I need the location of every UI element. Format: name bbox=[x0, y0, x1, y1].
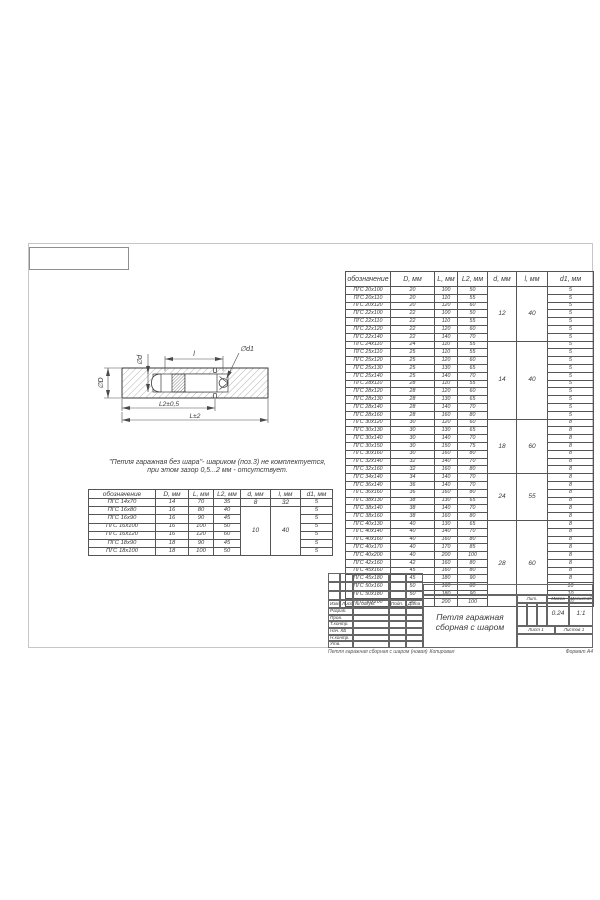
table-cell: 65 bbox=[458, 364, 488, 372]
table-cell: 24 bbox=[488, 474, 517, 521]
table-cell: ПГС 32x160 bbox=[346, 466, 391, 474]
date-cell bbox=[406, 635, 423, 642]
footer-format-label: Формат А4 bbox=[566, 649, 593, 655]
table-cell: 5 bbox=[548, 302, 594, 310]
table-row: ПГС 32x16032160808 bbox=[346, 466, 594, 474]
table-cell: 80 bbox=[458, 450, 488, 458]
table-cell: 130 bbox=[435, 364, 458, 372]
footer-doc-name: Петля гаражная сборная с шаром (новая) bbox=[328, 649, 428, 655]
small-size-table: обозначениеD, ммL, ммL2, ммd, ммl, ммd1,… bbox=[88, 489, 333, 556]
table-cell: ПГС 25x120 bbox=[346, 357, 391, 365]
table-cell: 5 bbox=[548, 310, 594, 318]
table-cell: ПГС 40x200 bbox=[346, 552, 391, 560]
table-cell: 50 bbox=[458, 310, 488, 318]
table-cell: 120 bbox=[435, 325, 458, 333]
table-cell: 140 bbox=[435, 372, 458, 380]
title-block: Петля гаражная сборная с шаром Лит. Масс… bbox=[328, 573, 593, 648]
table-row: ПГС 22x12022120605 bbox=[346, 325, 594, 333]
table-cell: 120 bbox=[435, 388, 458, 396]
table-cell: 65 bbox=[458, 427, 488, 435]
table-cell: ПГС 22x100 bbox=[346, 310, 391, 318]
table-row: ПГС 28x14028140705 bbox=[346, 403, 594, 411]
table-cell: 160 bbox=[435, 450, 458, 458]
date-cell bbox=[406, 641, 423, 648]
table-cell: 18 bbox=[488, 419, 517, 474]
table-cell: 35 bbox=[214, 499, 241, 507]
table-cell: 14 bbox=[156, 499, 189, 507]
dim-D bbox=[104, 368, 121, 398]
table-cell: 30 bbox=[391, 435, 435, 443]
table-cell: 40 bbox=[271, 507, 301, 556]
dim-label-d1: ∅d1 bbox=[240, 346, 254, 353]
table-cell: 8 bbox=[548, 489, 594, 497]
table-cell: 8 bbox=[548, 481, 594, 489]
table-row: ПГС 28x16028160805 bbox=[346, 411, 594, 419]
main-size-table-grid: обозначениеD, ммL, ммL2, ммd, ммl, ммd1,… bbox=[345, 271, 594, 607]
table-cell: 110 bbox=[435, 349, 458, 357]
column-header: L2, мм bbox=[458, 272, 488, 287]
table-cell: 5 bbox=[301, 531, 333, 539]
docnum-cell bbox=[353, 628, 389, 635]
table-cell: 100 bbox=[435, 287, 458, 295]
table-cell: 5 bbox=[548, 364, 594, 372]
table-cell: 55 bbox=[458, 349, 488, 357]
table-cell: 60 bbox=[458, 325, 488, 333]
document-title-line1: Петля гаражная bbox=[436, 612, 504, 622]
table-cell: 40 bbox=[391, 544, 435, 552]
table-cell: 20 bbox=[391, 302, 435, 310]
table-cell: ПГС 30x140 bbox=[346, 435, 391, 443]
table-row: ПГС 38x14038140708 bbox=[346, 505, 594, 513]
table-row: ПГС 25x12025120605 bbox=[346, 357, 594, 365]
lit-header: Лит. bbox=[517, 595, 547, 603]
table-cell: 120 bbox=[189, 531, 214, 539]
table-cell: 50 bbox=[458, 287, 488, 295]
table-cell: 32 bbox=[271, 499, 301, 507]
table-cell: ПГС 28x120 bbox=[346, 388, 391, 396]
table-cell: 36 bbox=[391, 489, 435, 497]
column-header: d, мм bbox=[241, 490, 271, 499]
table-cell: ПГС 32x140 bbox=[346, 458, 391, 466]
table-cell: 80 bbox=[458, 536, 488, 544]
revision-empty-cell bbox=[353, 573, 389, 582]
table-cell: 8 bbox=[548, 497, 594, 505]
table-row: ПГС 14x701470358325 bbox=[89, 499, 333, 507]
table-cell: 5 bbox=[548, 372, 594, 380]
table-row: ПГС 40x17040170858 bbox=[346, 544, 594, 552]
table-cell: 40 bbox=[517, 287, 548, 342]
table-cell: ПГС 25x130 bbox=[346, 364, 391, 372]
table-row: ПГС 24x110241105514405 bbox=[346, 341, 594, 349]
table-cell: 18 bbox=[156, 539, 189, 547]
table-row: ПГС 30x13030130658 bbox=[346, 427, 594, 435]
table-cell: 25 bbox=[391, 349, 435, 357]
role-label: Пров. bbox=[328, 615, 353, 622]
table-row: ПГС 20x12020120605 bbox=[346, 302, 594, 310]
table-row: ПГС 38x16038160808 bbox=[346, 513, 594, 521]
docnum-cell bbox=[353, 635, 389, 642]
table-cell: 8 bbox=[548, 442, 594, 450]
table-row: ПГС 25x14025140705 bbox=[346, 372, 594, 380]
table-cell: 80 bbox=[458, 411, 488, 419]
mass-header: Масса bbox=[547, 595, 569, 603]
table-cell: 16 bbox=[156, 507, 189, 515]
table-cell: 8 bbox=[548, 520, 594, 528]
table-cell: ПГС 30x120 bbox=[346, 419, 391, 427]
table-cell: 45 bbox=[214, 539, 241, 547]
table-cell: 28 bbox=[391, 388, 435, 396]
role-label: Утв. bbox=[328, 641, 353, 648]
table-cell: ПГС 14x70 bbox=[89, 499, 156, 507]
table-cell: 16 bbox=[156, 515, 189, 523]
table-cell: 28 bbox=[391, 396, 435, 404]
table-cell: 12 bbox=[488, 287, 517, 342]
table-cell: 18 bbox=[156, 548, 189, 556]
table-cell: ПГС 28x130 bbox=[346, 396, 391, 404]
table-row: ПГС 28x11028110555 bbox=[346, 380, 594, 388]
table-cell: ПГС 42x160 bbox=[346, 559, 391, 567]
revision-empty-cell bbox=[389, 591, 406, 600]
table-cell: ПГС 40x140 bbox=[346, 528, 391, 536]
table-cell: 70 bbox=[458, 528, 488, 536]
sheets-total: Листов 1 bbox=[555, 626, 593, 634]
table-cell: 8 bbox=[548, 474, 594, 482]
table-cell: 110 bbox=[435, 380, 458, 388]
table-cell: 80 bbox=[189, 507, 214, 515]
table-cell: ПГС 34x140 bbox=[346, 474, 391, 482]
table-cell: 8 bbox=[548, 544, 594, 552]
table-row: ПГС 42x16042160808 bbox=[346, 559, 594, 567]
table-cell: ПГС 36x140 bbox=[346, 481, 391, 489]
table-cell: 100 bbox=[189, 523, 214, 531]
table-cell: 8 bbox=[548, 466, 594, 474]
hinge-section-drawing: ∅D ∅d l ∅d1 L2±0,5 L±2 bbox=[83, 330, 295, 438]
dim-label-L: L±2 bbox=[190, 413, 201, 420]
revision-empty-cell bbox=[328, 573, 340, 582]
table-cell: 40 bbox=[517, 341, 548, 419]
table-cell: 8 bbox=[548, 559, 594, 567]
dim-label-D: ∅D bbox=[98, 377, 105, 388]
table-cell: ПГС 40x160 bbox=[346, 536, 391, 544]
table-cell: 38 bbox=[391, 497, 435, 505]
table-cell: 25 bbox=[391, 372, 435, 380]
table-row: ПГС 32x14032140708 bbox=[346, 458, 594, 466]
table-cell: ПГС 25x140 bbox=[346, 372, 391, 380]
dim-label-d: ∅d bbox=[137, 354, 144, 365]
table-cell: 60 bbox=[458, 302, 488, 310]
table-cell: 160 bbox=[435, 536, 458, 544]
revision-header: Дата bbox=[406, 600, 423, 608]
column-header: L, мм bbox=[189, 490, 214, 499]
table-cell: 25 bbox=[391, 357, 435, 365]
revision-empty-cell bbox=[353, 582, 389, 591]
table-cell: 5 bbox=[548, 349, 594, 357]
table-cell: 36 bbox=[391, 481, 435, 489]
header-row: обозначениеD, ммL, ммL2, ммd, ммl, ммd1,… bbox=[89, 490, 333, 499]
table-row: ПГС 22x10022100505 bbox=[346, 310, 594, 318]
small-size-table-grid: обозначениеD, ммL, ммL2, ммd, ммl, ммd1,… bbox=[88, 489, 333, 556]
table-cell: 34 bbox=[391, 474, 435, 482]
table-cell: 45 bbox=[214, 515, 241, 523]
revision-header: Изм. bbox=[328, 600, 340, 608]
table-cell: 40 bbox=[391, 520, 435, 528]
table-cell: 70 bbox=[458, 435, 488, 443]
table-cell: 5 bbox=[301, 507, 333, 515]
role-label: Нач. КБ bbox=[328, 628, 353, 635]
table-cell: 14 bbox=[488, 341, 517, 419]
table-row: ПГС 20x11020110555 bbox=[346, 294, 594, 302]
table-cell: ПГС 28x110 bbox=[346, 380, 391, 388]
table-cell: 160 bbox=[435, 466, 458, 474]
table-cell: 8 bbox=[548, 450, 594, 458]
table-cell: 70 bbox=[458, 403, 488, 411]
table-cell: ПГС 20x110 bbox=[346, 294, 391, 302]
footer-copied-label: Копировал bbox=[430, 649, 455, 655]
table-cell: 20 bbox=[391, 287, 435, 295]
table-cell: 8 bbox=[548, 427, 594, 435]
table-cell: 130 bbox=[435, 520, 458, 528]
table-cell: ПГС 18x100 bbox=[89, 548, 156, 556]
table-row: ПГС 30x120301206018608 bbox=[346, 419, 594, 427]
mass-value: 0.24 bbox=[547, 603, 569, 626]
table-cell: 5 bbox=[548, 287, 594, 295]
table-cell: 120 bbox=[435, 419, 458, 427]
table-cell: 70 bbox=[458, 372, 488, 380]
table-cell: 32 bbox=[391, 466, 435, 474]
table-cell: 140 bbox=[435, 458, 458, 466]
lit-sub-cell bbox=[527, 603, 537, 626]
table-cell: ПГС 20x100 bbox=[346, 287, 391, 295]
footer-strip: Петля гаражная сборная с шаром (новая) К… bbox=[328, 649, 593, 655]
table-cell: 22 bbox=[391, 333, 435, 341]
table-cell: ПГС 38x130 bbox=[346, 497, 391, 505]
dim-label-l: l bbox=[193, 351, 195, 358]
revision-empty-cell bbox=[328, 582, 340, 591]
role-label: Разраб. bbox=[328, 608, 353, 615]
column-header: d1, мм bbox=[548, 272, 594, 287]
table-cell: 170 bbox=[435, 544, 458, 552]
note-text: "Петля гаражная без шара"- шариком (поз.… bbox=[90, 459, 345, 475]
table-cell: 50 bbox=[214, 523, 241, 531]
role-label: Н.контр. bbox=[328, 635, 353, 642]
table-cell: 5 bbox=[301, 548, 333, 556]
revision-empty-cell bbox=[406, 573, 423, 582]
table-cell: 55 bbox=[458, 341, 488, 349]
table-cell: 8 bbox=[548, 435, 594, 443]
table-cell: ПГС 16x80 bbox=[89, 507, 156, 515]
table-cell: 32 bbox=[391, 458, 435, 466]
table-row: ПГС 28x12028120605 bbox=[346, 388, 594, 396]
docnum-cell bbox=[353, 615, 389, 622]
table-cell: 8 bbox=[548, 513, 594, 521]
column-header: обозначение bbox=[346, 272, 391, 287]
pin-hatched-segment bbox=[172, 374, 185, 392]
table-cell: 40 bbox=[391, 552, 435, 560]
column-header: обозначение bbox=[89, 490, 156, 499]
revision-empty-cell bbox=[389, 573, 406, 582]
table-cell: 100 bbox=[435, 310, 458, 318]
table-cell: 70 bbox=[458, 458, 488, 466]
table-cell: 60 bbox=[458, 357, 488, 365]
table-cell: 30 bbox=[391, 419, 435, 427]
table-row: ПГС 40x14040140708 bbox=[346, 528, 594, 536]
table-cell: 110 bbox=[435, 318, 458, 326]
table-cell: 130 bbox=[435, 497, 458, 505]
date-cell bbox=[406, 628, 423, 635]
table-row: ПГС 38x13038130658 bbox=[346, 497, 594, 505]
table-cell: ПГС 40x170 bbox=[346, 544, 391, 552]
table-cell: 70 bbox=[458, 474, 488, 482]
note-line-1: "Петля гаражная без шара"- шариком (поз.… bbox=[90, 459, 345, 467]
revision-header: Подп. bbox=[389, 600, 406, 608]
pin-ball-end bbox=[152, 374, 162, 392]
revision-empty-cell bbox=[328, 591, 340, 600]
table-cell: 8 bbox=[241, 499, 271, 507]
table-row: ПГС 36x14036140708 bbox=[346, 481, 594, 489]
table-cell: 100 bbox=[458, 552, 488, 560]
table-cell: 90 bbox=[189, 515, 214, 523]
column-header: D, мм bbox=[156, 490, 189, 499]
sign-cell bbox=[389, 608, 406, 615]
table-cell: 5 bbox=[548, 411, 594, 419]
table-cell: 5 bbox=[548, 333, 594, 341]
table-cell: 140 bbox=[435, 528, 458, 536]
table-cell: 38 bbox=[391, 505, 435, 513]
table-cell: ПГС 38x160 bbox=[346, 513, 391, 521]
table-cell: ПГС 22x140 bbox=[346, 333, 391, 341]
table-cell: 110 bbox=[435, 341, 458, 349]
table-cell: ПГС 36x160 bbox=[346, 489, 391, 497]
table-cell: 28 bbox=[391, 411, 435, 419]
revision-header: Лист bbox=[340, 600, 353, 608]
table-cell: 22 bbox=[391, 325, 435, 333]
corner-designation-box bbox=[29, 247, 129, 270]
revision-empty-cell bbox=[406, 591, 423, 600]
table-cell: 150 bbox=[435, 442, 458, 450]
table-cell: ПГС 28x160 bbox=[346, 411, 391, 419]
table-cell: 110 bbox=[435, 294, 458, 302]
table-cell: ПГС 40x130 bbox=[346, 520, 391, 528]
table-cell: ПГС 22x120 bbox=[346, 325, 391, 333]
table-cell: 160 bbox=[435, 513, 458, 521]
sign-cell bbox=[389, 641, 406, 648]
table-cell: 5 bbox=[301, 539, 333, 547]
table-cell: 5 bbox=[301, 499, 333, 507]
table-cell: 65 bbox=[458, 520, 488, 528]
table-cell: 140 bbox=[435, 333, 458, 341]
table-cell: 160 bbox=[435, 489, 458, 497]
table-cell: 60 bbox=[458, 419, 488, 427]
sign-cell bbox=[389, 615, 406, 622]
docnum-cell bbox=[353, 641, 389, 648]
table-cell: ПГС 16x120 bbox=[89, 531, 156, 539]
table-cell: 55 bbox=[458, 294, 488, 302]
table-row: ПГС 34x140341407024558 bbox=[346, 474, 594, 482]
table-cell: 90 bbox=[189, 539, 214, 547]
table-cell: 130 bbox=[435, 396, 458, 404]
table-cell: ПГС 38x140 bbox=[346, 505, 391, 513]
table-cell: 28 bbox=[391, 380, 435, 388]
table-cell: 16 bbox=[156, 531, 189, 539]
designation-cell bbox=[423, 584, 593, 595]
table-cell: 10 bbox=[241, 507, 271, 556]
lit-sub-cell bbox=[517, 603, 527, 626]
table-cell: ПГС 22x110 bbox=[346, 318, 391, 326]
table-row: ПГС 25x11025110555 bbox=[346, 349, 594, 357]
revision-header: № докум. bbox=[353, 600, 389, 608]
table-cell: 16 bbox=[156, 523, 189, 531]
table-cell: 8 bbox=[548, 536, 594, 544]
dim-label-L2: L2±0,5 bbox=[159, 401, 179, 408]
column-header: L, мм bbox=[435, 272, 458, 287]
table-cell: 140 bbox=[435, 474, 458, 482]
table-cell: ПГС 20x120 bbox=[346, 302, 391, 310]
table-cell: 30 bbox=[391, 450, 435, 458]
table-cell: 42 bbox=[391, 559, 435, 567]
table-cell: 140 bbox=[435, 435, 458, 443]
table-cell: 5 bbox=[548, 380, 594, 388]
table-row: ПГС 22x14022140705 bbox=[346, 333, 594, 341]
column-header: d1, мм bbox=[301, 490, 333, 499]
table-row: ПГС 16x8016804010405 bbox=[89, 507, 333, 515]
table-cell: 75 bbox=[458, 442, 488, 450]
table-cell: 40 bbox=[391, 528, 435, 536]
table-row: ПГС 22x11022110555 bbox=[346, 318, 594, 326]
column-header: D, мм bbox=[391, 272, 435, 287]
main-size-table: обозначениеD, ммL, ммL2, ммd, ммl, ммd1,… bbox=[345, 271, 594, 607]
revision-empty-cell bbox=[340, 591, 353, 600]
organization-cell bbox=[517, 634, 593, 648]
scale-value: 1:1 bbox=[569, 603, 593, 626]
table-cell: 70 bbox=[458, 333, 488, 341]
table-cell: 85 bbox=[458, 544, 488, 552]
table-cell: ПГС 16x90 bbox=[89, 515, 156, 523]
table-cell: 65 bbox=[458, 396, 488, 404]
table-cell: 200 bbox=[435, 552, 458, 560]
table-cell: ПГС 24x110 bbox=[346, 341, 391, 349]
table-cell: 80 bbox=[458, 489, 488, 497]
table-row: ПГС 36x16036160808 bbox=[346, 489, 594, 497]
table-cell: ПГС 30x130 bbox=[346, 427, 391, 435]
table-cell: 8 bbox=[548, 528, 594, 536]
table-cell: 100 bbox=[189, 548, 214, 556]
table-cell: 55 bbox=[517, 474, 548, 521]
revision-empty-cell bbox=[389, 582, 406, 591]
table-cell: 70 bbox=[458, 505, 488, 513]
table-cell: 60 bbox=[517, 419, 548, 474]
revision-empty-cell bbox=[353, 591, 389, 600]
table-cell: 20 bbox=[391, 294, 435, 302]
table-cell: 65 bbox=[458, 497, 488, 505]
table-row: ПГС 40x200402001008 bbox=[346, 552, 594, 560]
table-cell: 60 bbox=[214, 531, 241, 539]
sign-cell bbox=[389, 628, 406, 635]
scale-header: Масштаб bbox=[569, 595, 593, 603]
table-cell: 70 bbox=[189, 499, 214, 507]
table-cell: 5 bbox=[548, 294, 594, 302]
table-cell: 140 bbox=[435, 403, 458, 411]
table-cell: 160 bbox=[435, 559, 458, 567]
table-cell: ПГС 18x90 bbox=[89, 539, 156, 547]
table-cell: 40 bbox=[391, 536, 435, 544]
sign-cell bbox=[389, 635, 406, 642]
table-cell: 55 bbox=[458, 380, 488, 388]
table-cell: 5 bbox=[548, 388, 594, 396]
table-cell: 140 bbox=[435, 481, 458, 489]
revision-empty-cell bbox=[406, 582, 423, 591]
role-label: Т.контр. bbox=[328, 621, 353, 628]
date-cell bbox=[406, 615, 423, 622]
